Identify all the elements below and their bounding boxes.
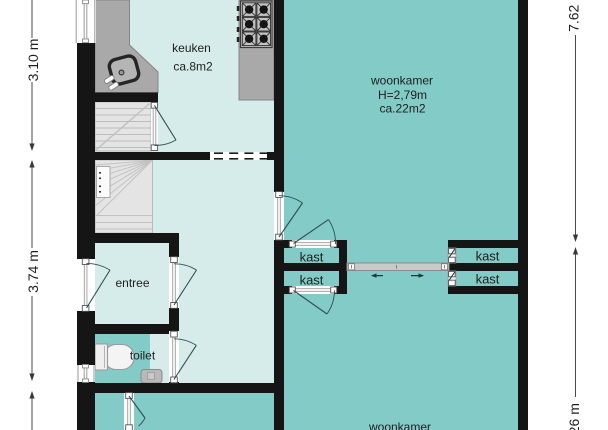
svg-text:kast: kast: [476, 249, 500, 264]
svg-text:H=2,79m: H=2,79m: [378, 88, 427, 102]
svg-text:kast: kast: [476, 272, 500, 287]
svg-text:woonkamer: woonkamer: [368, 420, 431, 430]
svg-text:3.10 m: 3.10 m: [25, 39, 41, 82]
svg-text:3,26 m: 3,26 m: [566, 403, 582, 430]
svg-text:kast: kast: [300, 250, 324, 265]
svg-text:kast: kast: [300, 273, 324, 288]
svg-text:ca.22m2: ca.22m2: [379, 102, 425, 116]
svg-text:7.62 m: 7.62 m: [566, 0, 582, 32]
svg-text:3.74 m: 3.74 m: [25, 250, 41, 293]
svg-text:ca.8m2: ca.8m2: [173, 60, 213, 74]
svg-text:entree: entree: [115, 276, 149, 290]
svg-text:keuken: keuken: [172, 41, 211, 55]
svg-text:toilet: toilet: [130, 349, 156, 363]
svg-text:woonkamer: woonkamer: [370, 74, 433, 88]
